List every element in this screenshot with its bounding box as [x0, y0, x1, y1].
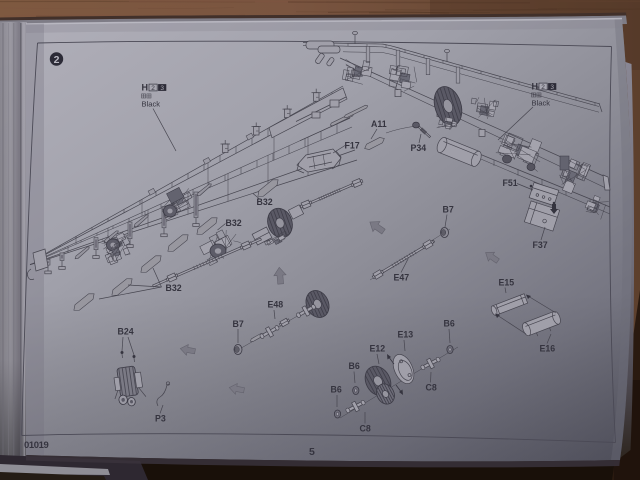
- svg-text:3: 3: [550, 84, 554, 91]
- svg-text:E15: E15: [499, 278, 515, 288]
- svg-text:Black: Black: [142, 100, 161, 109]
- svg-text:F17: F17: [345, 141, 360, 151]
- svg-text:E16: E16: [540, 344, 556, 354]
- svg-text:F51: F51: [503, 178, 518, 188]
- svg-text:2: 2: [151, 85, 155, 92]
- svg-text:C8: C8: [426, 383, 437, 393]
- svg-text:3: 3: [160, 85, 164, 92]
- svg-text:B6: B6: [349, 361, 360, 371]
- svg-text:B6: B6: [444, 319, 455, 329]
- svg-text:E12: E12: [370, 344, 386, 354]
- svg-text:2: 2: [54, 54, 60, 66]
- svg-text:01019: 01019: [24, 440, 49, 451]
- svg-text:Black: Black: [532, 99, 551, 108]
- svg-text:H: H: [532, 82, 539, 92]
- svg-text:2: 2: [541, 84, 545, 91]
- svg-text:F37: F37: [533, 240, 548, 250]
- svg-text:B32: B32: [226, 218, 242, 228]
- svg-text:E48: E48: [268, 300, 284, 310]
- svg-text:5: 5: [309, 446, 315, 458]
- svg-text:E47: E47: [394, 273, 410, 283]
- svg-text:B24: B24: [118, 327, 134, 337]
- svg-text:B6: B6: [331, 385, 342, 395]
- svg-text:E13: E13: [398, 330, 414, 340]
- svg-text:H: H: [142, 83, 149, 93]
- svg-text:P34: P34: [411, 143, 427, 153]
- svg-text:B7: B7: [233, 319, 244, 329]
- svg-text:A11: A11: [371, 119, 387, 129]
- svg-text:B32: B32: [166, 283, 182, 293]
- svg-text:C8: C8: [360, 424, 371, 434]
- svg-text:P3: P3: [155, 414, 166, 424]
- svg-text:B7: B7: [443, 205, 454, 215]
